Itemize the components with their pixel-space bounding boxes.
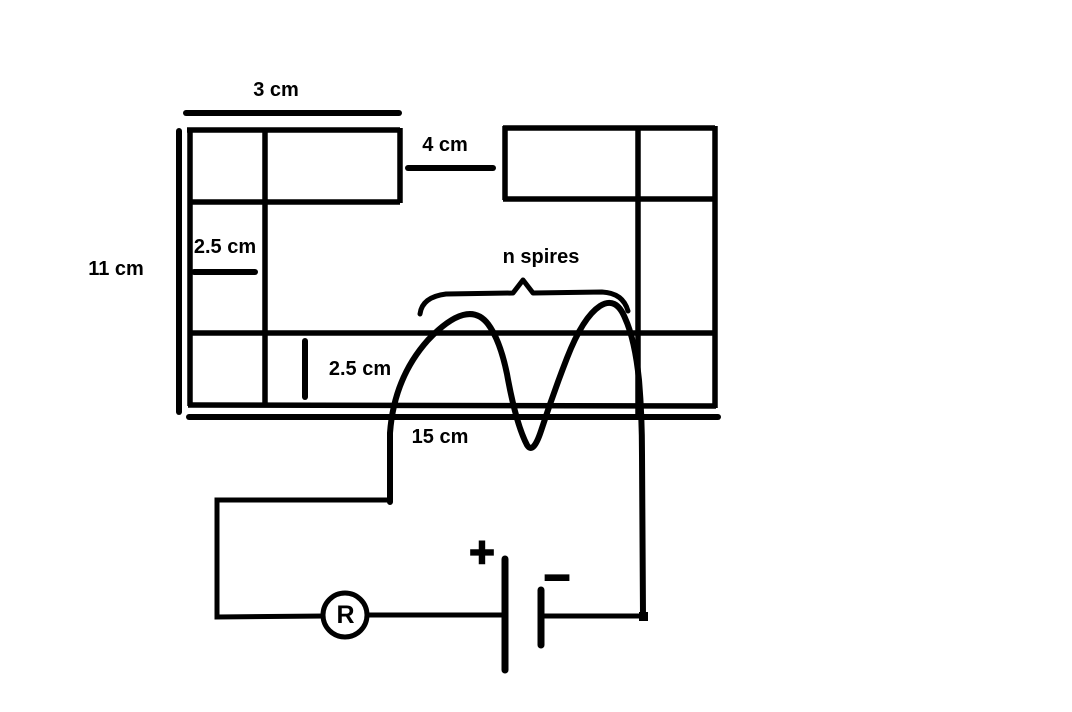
- label-bottom-limb-thickness: 2.5 cm: [319, 358, 401, 380]
- wire-junction-dot: [639, 612, 648, 621]
- label-n-spires: n spires: [493, 246, 589, 268]
- label-total-height: 11 cm: [81, 258, 151, 280]
- coil-winding-wire: [390, 303, 643, 616]
- label-air-gap-width: 4 cm: [414, 134, 476, 156]
- battery-negative-sign: –: [536, 551, 578, 597]
- circuit-wiring: [217, 500, 648, 621]
- label-top-segment-width: 3 cm: [242, 79, 310, 101]
- core-bottom-outer-edge: [188, 405, 716, 406]
- label-total-width: 15 cm: [404, 426, 476, 448]
- resistor-label: R: [330, 602, 361, 628]
- electromagnet-circuit-diagram: 3 cm 4 cm 2.5 cm 11 cm 2.5 cm 15 cm n sp…: [0, 0, 1072, 712]
- battery-positive-sign: +: [460, 530, 504, 576]
- label-left-limb-width: 2.5 cm: [186, 236, 264, 258]
- diagram-drawing: [0, 0, 1072, 712]
